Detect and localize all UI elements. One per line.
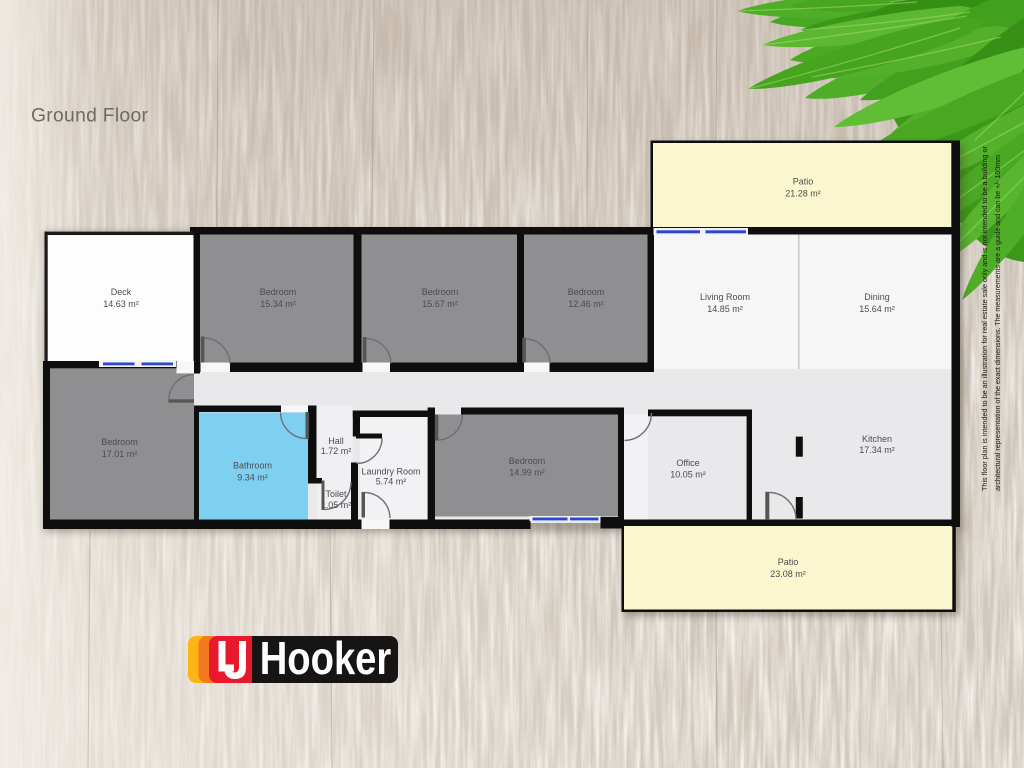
svg-text:15.64 m²: 15.64 m² [859,304,895,314]
svg-text:Office: Office [676,458,699,468]
svg-text:Bathroom: Bathroom [233,461,272,471]
svg-text:17.34 m²: 17.34 m² [859,445,895,455]
svg-text:Ground Floor: Ground Floor [31,106,148,127]
svg-text:9.34 m²: 9.34 m² [237,473,268,483]
svg-text:Patio: Patio [793,177,814,187]
svg-text:21.28 m²: 21.28 m² [785,189,821,199]
svg-text:Bedroom: Bedroom [101,437,138,447]
svg-text:Toilet: Toilet [325,489,347,499]
svg-text:Bedroom: Bedroom [422,287,459,297]
svg-text:Deck: Deck [111,287,132,297]
svg-text:10.05 m²: 10.05 m² [670,470,706,480]
svg-text:1.05 m²: 1.05 m² [321,500,352,510]
svg-text:Hooker: Hooker [260,633,392,684]
svg-text:Bedroom: Bedroom [509,456,546,466]
svg-text:23.08 m²: 23.08 m² [770,569,806,579]
svg-text:17.01 m²: 17.01 m² [102,449,138,459]
svg-text:14.85 m²: 14.85 m² [707,304,743,314]
svg-text:Living Room: Living Room [700,292,750,302]
svg-text:Laundry Room: Laundry Room [361,467,420,477]
svg-text:Kitchen: Kitchen [862,434,892,444]
svg-text:Bedroom: Bedroom [260,287,297,297]
svg-text:14.99 m²: 14.99 m² [509,468,545,478]
svg-text:Hall: Hall [328,436,344,446]
svg-text:12.46 m²: 12.46 m² [568,299,604,309]
svg-text:5.74 m²: 5.74 m² [376,477,407,487]
svg-text:15.67 m²: 15.67 m² [422,299,458,309]
svg-text:14.63 m²: 14.63 m² [103,299,139,309]
svg-text:This floor plan is intended to: This floor plan is intended to be an ill… [980,146,989,491]
svg-text:1.72 m²: 1.72 m² [321,446,352,456]
svg-text:Dining: Dining [864,292,890,302]
svg-text:architectural representation o: architectural representation of the exac… [993,155,1002,491]
svg-text:Patio: Patio [778,557,799,567]
svg-text:Bedroom: Bedroom [568,287,605,297]
svg-text:15.34 m²: 15.34 m² [260,299,296,309]
